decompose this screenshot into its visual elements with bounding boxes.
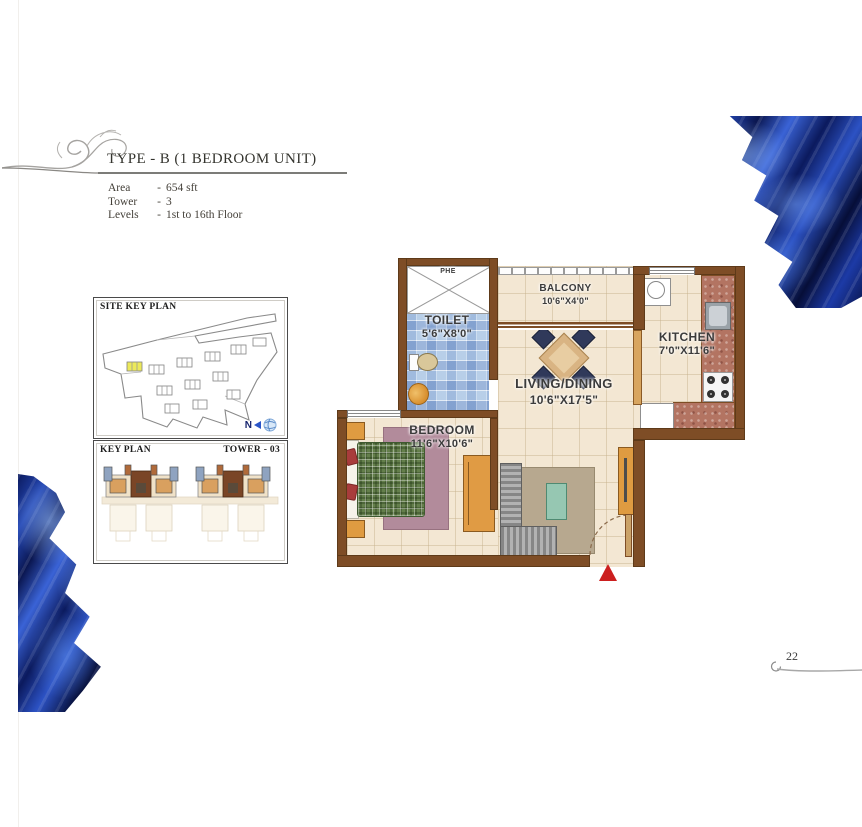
entrance-arrow-icon (599, 564, 617, 581)
living-dims: 10'6"X17'5" (488, 393, 640, 407)
kitchen-label: KITCHEN (641, 330, 733, 344)
page-title: TYPE - B (1 BEDROOM UNIT) (107, 151, 317, 168)
kitchen-sink (705, 302, 731, 330)
spec-value: 654 sft (166, 182, 198, 195)
brochure-page: TYPE - B (1 BEDROOM UNIT) Area - 654 sft… (0, 0, 862, 827)
wall (633, 428, 745, 440)
key-plan-drawing (98, 457, 282, 559)
compass-globe-icon (253, 418, 279, 432)
kitchen-dims: 7'0"X11'6" (641, 345, 733, 357)
nightstand-bottom (345, 520, 365, 538)
spec-label: Tower (108, 196, 152, 209)
balcony-dims: 10'6"X4'0" (498, 296, 633, 306)
spec-dash: - (152, 182, 166, 195)
toilet-dims: 5'6"X8'0" (401, 328, 493, 340)
key-plan-title: KEY PLAN (100, 445, 151, 455)
floor-plan: PHE (337, 258, 745, 590)
refrigerator-space (640, 403, 674, 430)
key-plan-panel: KEY PLAN TOWER - 03 (93, 440, 288, 564)
spec-value: 1st to 16th Floor (166, 209, 242, 222)
kitchen-counter-bottom (673, 402, 735, 430)
north-label: N (245, 420, 252, 431)
toilet-basin (408, 383, 429, 405)
spec-row-levels: Levels - 1st to 16th Floor (108, 209, 242, 222)
footer-curl-ornament-icon (764, 654, 862, 676)
nightstand-top (345, 422, 365, 440)
spec-label: Area (108, 182, 152, 195)
washing-machine (643, 278, 671, 306)
site-plan-drawing (97, 310, 283, 432)
sofa (500, 526, 557, 557)
coffee-table (546, 483, 567, 520)
bedroom-window (347, 410, 401, 418)
bedroom-dims: 11'6"X10'6" (387, 438, 497, 450)
site-key-plan-panel: SITE KEY PLAN N (93, 297, 288, 439)
stove (703, 372, 733, 402)
wall (735, 266, 745, 440)
balcony-railing (498, 267, 633, 275)
spec-value: 3 (166, 196, 172, 209)
shaft-label: PHE (407, 268, 489, 275)
wall (398, 258, 498, 266)
living-label: LIVING/DINING (488, 376, 640, 391)
bedroom-label: BEDROOM (387, 423, 497, 437)
bed (357, 442, 425, 517)
spec-row-area: Area - 654 sft (108, 182, 242, 195)
balcony-label: BALCONY (498, 283, 633, 294)
spec-row-tower: Tower - 3 (108, 196, 242, 209)
entrance-door-leaf (625, 514, 632, 557)
spec-dash: - (152, 209, 166, 222)
spec-label: Levels (108, 209, 152, 222)
unit-specs: Area - 654 sft Tower - 3 Levels - 1st to… (108, 182, 242, 223)
balcony-sliding-door (498, 322, 633, 330)
north-compass: N (245, 418, 279, 432)
tv (624, 458, 627, 502)
wall (337, 418, 347, 567)
toilet-wc-bowl (417, 353, 438, 371)
tower-label: TOWER - 03 (223, 445, 280, 455)
toilet-label: TOILET (401, 313, 493, 327)
wall (337, 555, 590, 567)
kitchen-window (649, 267, 695, 275)
wall (633, 266, 645, 330)
spec-dash: - (152, 196, 166, 209)
